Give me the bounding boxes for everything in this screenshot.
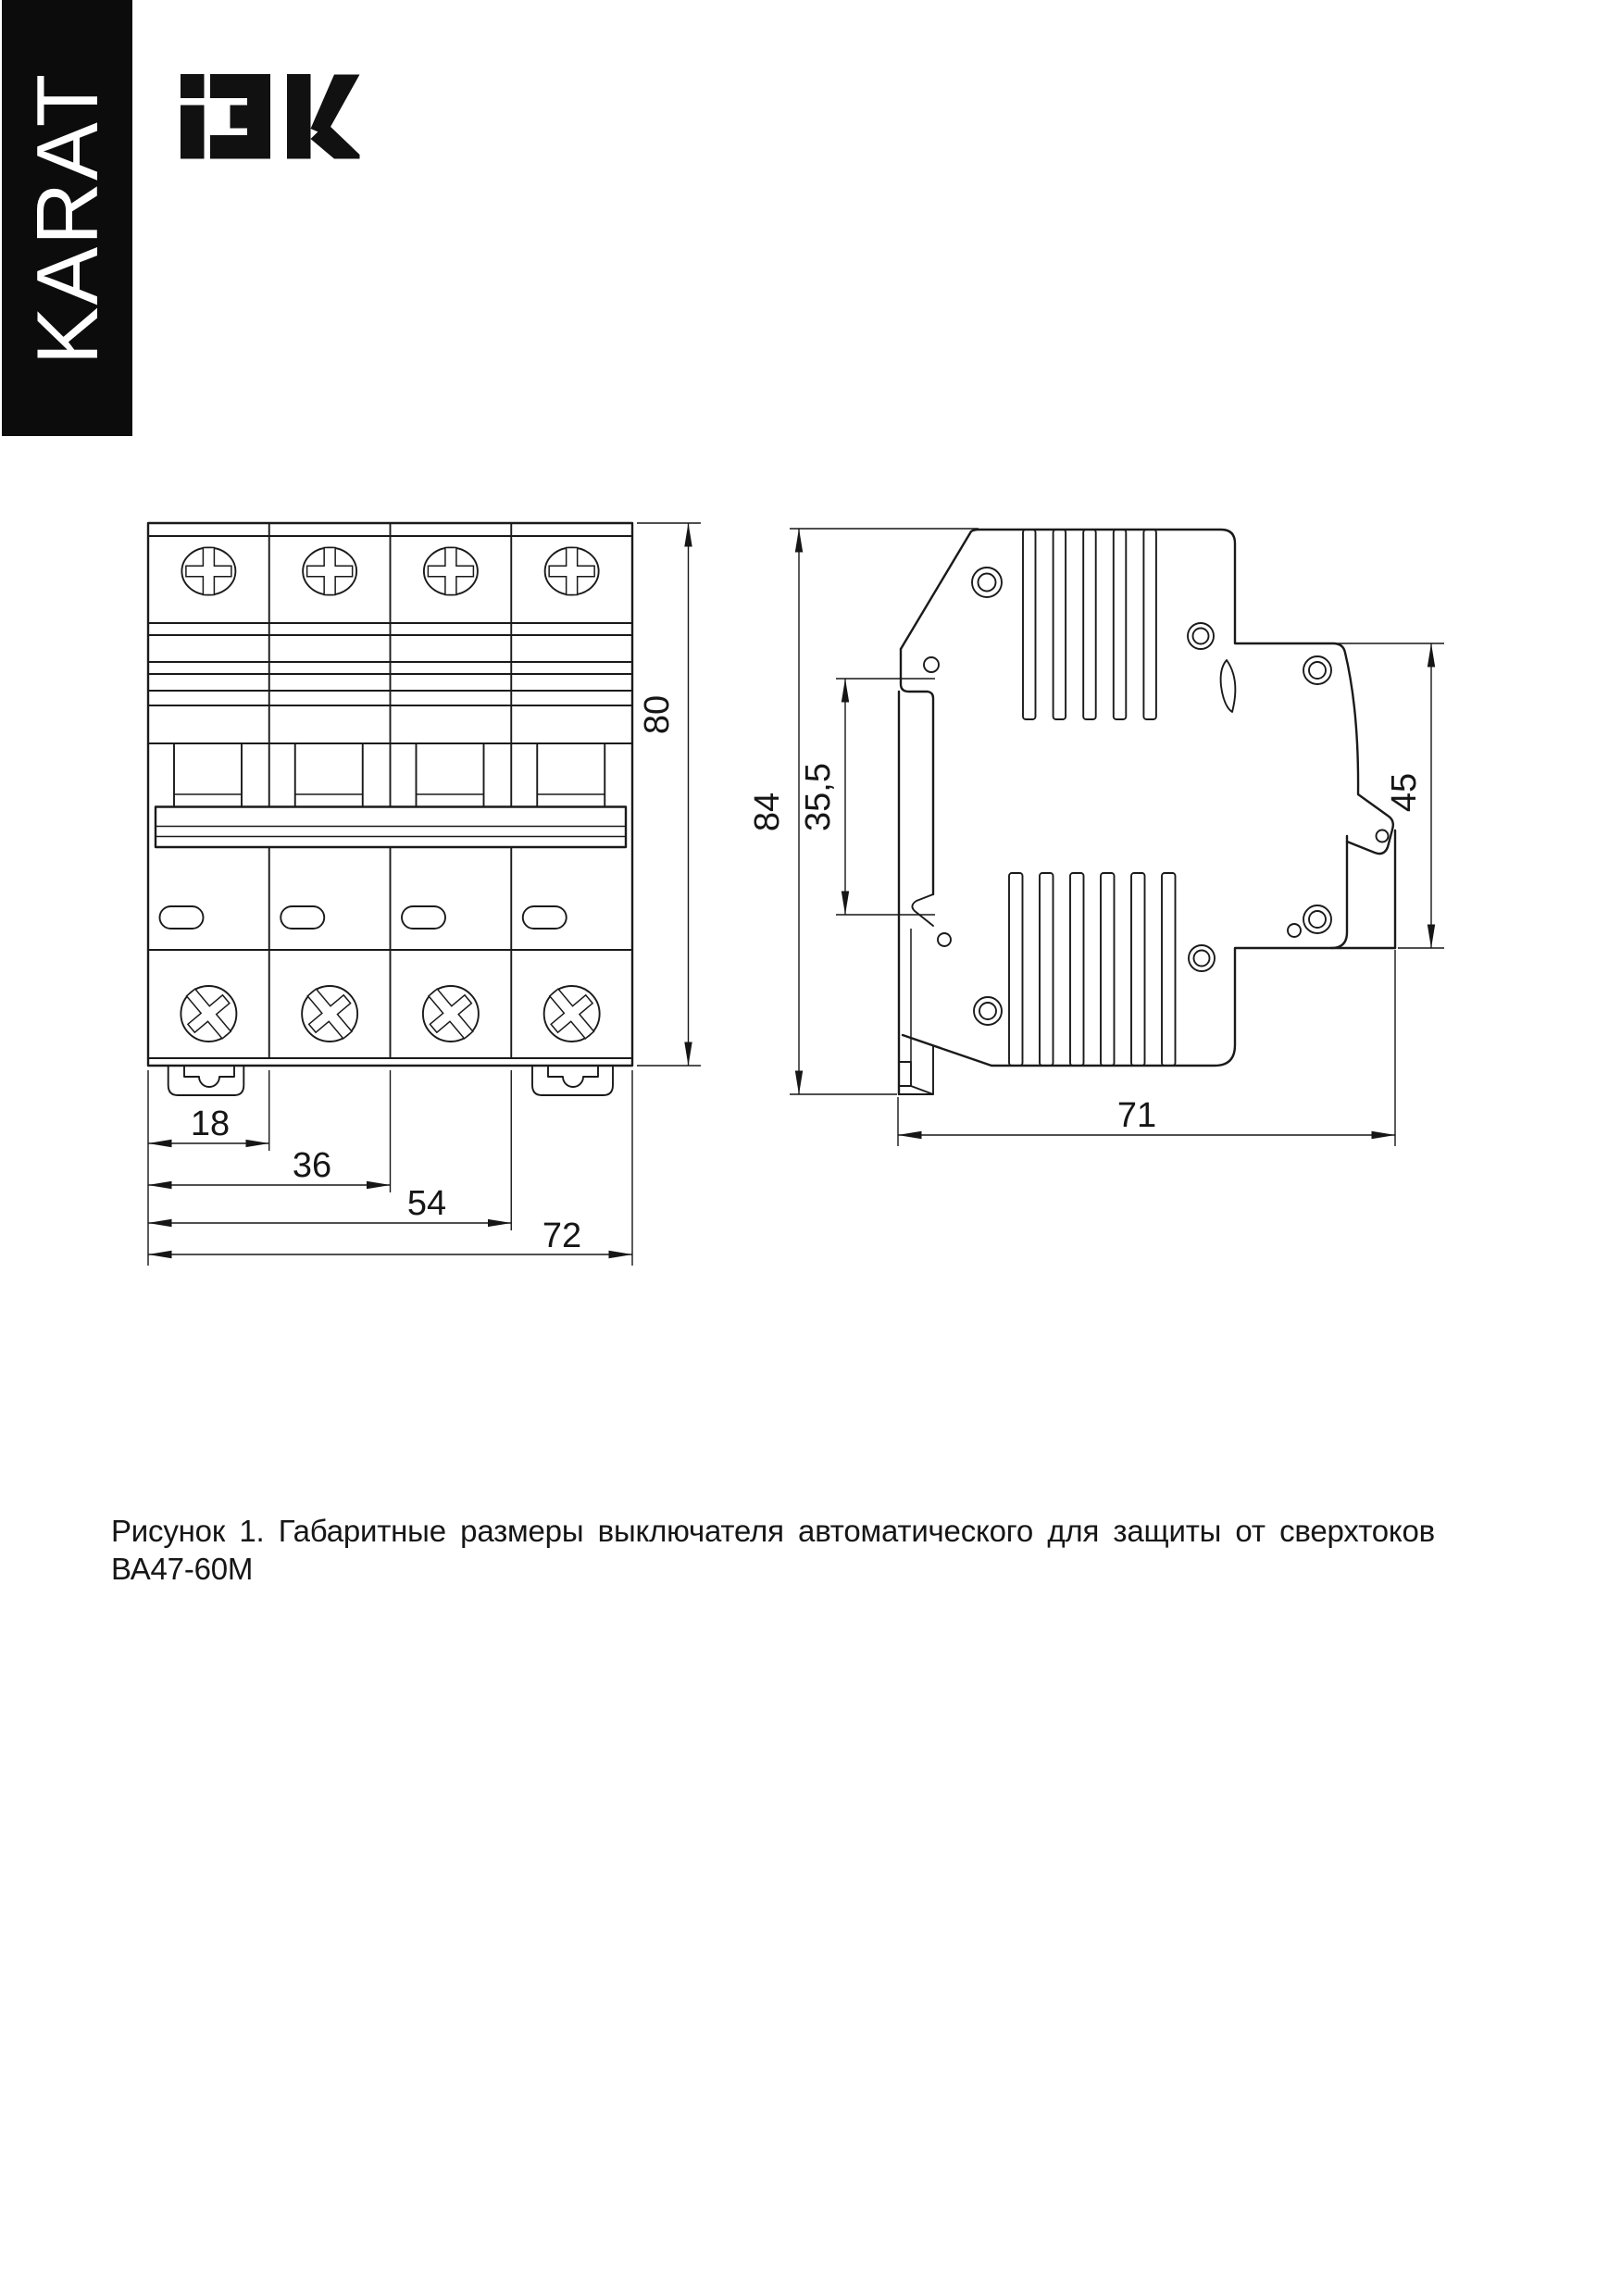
marking-window (523, 906, 567, 929)
dim-label-35-5: 35,5 (799, 763, 838, 831)
marking-window (281, 906, 324, 929)
dim-label-71: 71 (1117, 1096, 1156, 1135)
dim-front-height: 80 (637, 523, 701, 1066)
dim-label-80: 80 (638, 695, 677, 734)
dimension-drawing: 80 18 36 54 72 (0, 0, 1621, 2296)
side-view: 84 35,5 45 71 (748, 529, 1444, 1146)
vent-slots (1009, 530, 1176, 1066)
pole-3 (391, 523, 486, 1058)
din-clip-left (168, 1066, 244, 1095)
breaker-poles (160, 523, 607, 1058)
front-view: 80 18 36 54 72 (148, 523, 701, 1266)
toggle-window (537, 743, 605, 807)
dim-label-72: 72 (542, 1217, 581, 1255)
pole-2 (269, 523, 365, 1058)
dim-label-45: 45 (1385, 773, 1424, 812)
toggle-window (417, 743, 484, 807)
marking-window (160, 906, 204, 929)
dim-din-channel: 35,5 (799, 679, 935, 915)
toggle-tie-bar (156, 807, 626, 848)
figure-caption: Рисунок 1. Габаритные размеры выключател… (111, 1512, 1435, 1589)
toggle-window (295, 743, 363, 807)
dim-label-36: 36 (293, 1146, 331, 1185)
dim-label-18: 18 (191, 1104, 230, 1143)
dim-label-54: 54 (407, 1184, 446, 1223)
dim-depth: 71 (898, 950, 1395, 1146)
marking-window (402, 906, 445, 929)
din-clip-right (532, 1066, 613, 1095)
dim-front-widths: 18 36 54 72 (148, 1070, 632, 1266)
dim-front-step: 45 (1338, 643, 1444, 948)
dim-side-height: 84 (748, 529, 979, 1094)
dim-label-84: 84 (748, 792, 787, 831)
toggle-window (174, 743, 242, 807)
pole-4 (511, 523, 606, 1058)
din-channel (899, 649, 933, 1094)
